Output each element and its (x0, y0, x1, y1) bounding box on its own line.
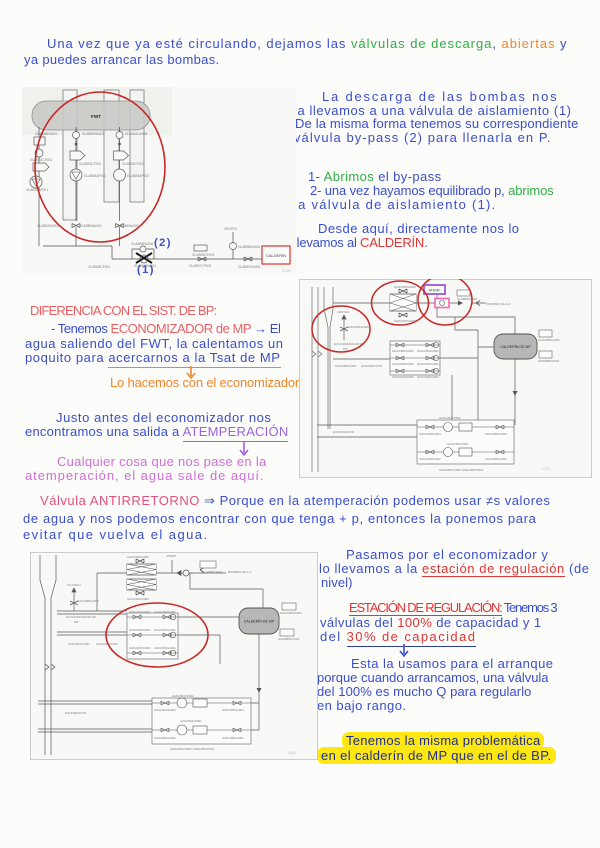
svg-text:ATEMP: ATEMP (428, 289, 441, 293)
svg-text:GMACB4NA002: GMACB4NA002 (417, 362, 439, 366)
svg-text:GMACB4NA002: GMACB4NA002 (154, 736, 176, 740)
svg-text:VENTEO: VENTEO (224, 227, 238, 231)
svg-text:GLABB3CP002: GLABB3CP002 (122, 162, 144, 166)
svg-text:GMACB3NA001: GMACB3NA001 (129, 610, 151, 614)
svg-text:MP: MP (343, 347, 348, 351)
svg-text:GMACB3NA001: GMACB3NA001 (392, 349, 414, 353)
svg-text:GMACB3CT001: GMACB3CT001 (361, 364, 383, 368)
svg-text:GMACB5NA002: GMACB5NA002 (222, 736, 244, 740)
svg-text:GMABB0CP001: GMABB0CP001 (538, 359, 560, 363)
svg-text:VENTEO: VENTEO (337, 310, 350, 314)
svg-text:GLABB5NA006: GLABB5NA006 (131, 242, 153, 246)
svg-text:GMACB3CP002: GMACB3CP002 (439, 416, 461, 420)
svg-text:GLABB5CP001: GLABB5CP001 (88, 265, 110, 269)
svg-text:CALDERÍN DE MP: CALDERÍN DE MP (500, 345, 531, 349)
svg-text:17/21: 17/21 (282, 269, 291, 273)
svg-text:GMACB5NA001: GMACB5NA001 (280, 611, 302, 615)
svg-text:GLABB1CP001: GLABB1CP001 (30, 158, 52, 162)
svg-text:2LABB5NA003: 2LABB5NA003 (80, 224, 102, 228)
svg-text:EVAPORADOR: EVAPORADOR (333, 430, 355, 434)
svg-text:GLABB4AP001: GLABB4AP001 (84, 174, 106, 178)
svg-text:V.CARGO: V.CARGO (67, 583, 81, 587)
svg-text:CALDERÍN: CALDERÍN (266, 253, 286, 258)
svg-text:17/21: 17/21 (542, 467, 550, 471)
svg-text:GMACB4CP001: GMACB4CP001 (180, 719, 202, 723)
svg-text:GMACB4NA001: GMACB4NA001 (154, 646, 176, 650)
svg-text:6LABB6CP001: 6LABB6CP001 (457, 297, 478, 301)
svg-text:GMACB3NA001: GMACB3NA001 (129, 646, 151, 650)
svg-text:GLABB4AP002: GLABB4AP002 (127, 174, 149, 178)
svg-text:GMACB3NA003: GMACB3NA003 (127, 597, 149, 601)
svg-text:GMACB3NA003: GMACB3NA003 (127, 555, 149, 559)
svg-text:GMACB4NA001: GMACB4NA001 (154, 610, 176, 614)
svg-text:GMACB4NA003: GMACB4NA003 (154, 708, 176, 712)
svg-text:GMACB3CP001: GMACB3CP001 (68, 642, 90, 646)
svg-text:GMACB3NA003: GMACB3NA003 (394, 285, 416, 289)
svg-text:GMACB5NA002: GMACB5NA002 (485, 457, 507, 461)
svg-text:GLABB5CP001: GLABB5CP001 (202, 570, 223, 574)
svg-text:GLABB2NA008: GLABB2NA008 (125, 132, 147, 136)
svg-text:GMACB3CP001: GMACB3CP001 (335, 364, 357, 368)
svg-text:GMACB3CP002 GMACB5CP001: GMACB3CP002 GMACB5CP001 (170, 747, 215, 751)
svg-text:GMACB4NA003: GMACB4NA003 (419, 432, 441, 436)
svg-text:ATEMP: ATEMP (166, 554, 176, 558)
svg-text:GMACB3NA002: GMACB3NA002 (392, 362, 414, 366)
svg-text:GLABB7NA004: GLABB7NA004 (238, 265, 260, 269)
svg-text:GMACB3CP002 GMACB5CP001: GMACB3CP002 GMACB5CP001 (439, 468, 484, 472)
svg-text:GLABB8NA001: GLABB8NA001 (35, 132, 57, 136)
svg-text:GLABB3CP001: GLABB3CP001 (79, 162, 101, 166)
svg-text:ECONOMIZADOR DE: ECONOMIZADOR DE (66, 615, 96, 619)
svg-text:16/21: 16/21 (288, 751, 296, 755)
svg-text:GMACB4NA002: GMACB4NA002 (419, 457, 441, 461)
svg-text:GMACB5NA005: GMACB5NA005 (77, 599, 99, 603)
svg-text:BOMBAS DE A.A.: BOMBAS DE A.A. (228, 570, 252, 574)
svg-text:BOMBAS DE A.A.: BOMBAS DE A.A. (487, 302, 511, 306)
svg-text:GMACB3NA001: GMACB3NA001 (129, 628, 151, 632)
svg-text:GMABB0CP001: GMABB0CP001 (278, 637, 300, 641)
svg-text:GLABB2NA007: GLABB2NA007 (82, 132, 104, 136)
svg-text:GMACB5NA003: GMACB5NA003 (222, 708, 244, 712)
svg-text:3LABB6NA003: 3LABB6NA003 (117, 224, 139, 228)
svg-text:GMACB4NA001: GMACB4NA001 (417, 349, 439, 353)
svg-text:GLABB2NA003: GLABB2NA003 (37, 224, 59, 228)
svg-text:GMACB5NA001: GMACB5NA001 (538, 338, 560, 342)
svg-text:GMACB5NA003: GMACB5NA003 (485, 432, 507, 436)
svg-text:EVAPORADOR: EVAPORADOR (65, 711, 87, 715)
svg-text:GMACB3CP002: GMACB3CP002 (172, 694, 194, 698)
svg-text:GMACB4CP001: GMACB4CP001 (447, 442, 469, 446)
svg-text:GMACB3NA003: GMACB3NA003 (392, 375, 414, 379)
svg-text:GLABB7CP004: GLABB7CP004 (189, 264, 211, 268)
svg-text:GLABB6NA004: GLABB6NA004 (238, 245, 260, 249)
svg-text:CALDERÍN DE MP: CALDERÍN DE MP (244, 620, 275, 624)
svg-text:GMACB4NA003: GMACB4NA003 (417, 375, 439, 379)
svg-text:ECONOMIZADOR DE: ECONOMIZADOR DE (334, 342, 364, 346)
svg-text:GMACB4NA001: GMACB4NA001 (154, 628, 176, 632)
svg-text:MP: MP (74, 620, 79, 624)
svg-text:GMACB5NA005: GMACB5NA005 (347, 325, 369, 329)
svg-text:GLABB9CP003: GLABB9CP003 (192, 253, 214, 257)
svg-text:FWT: FWT (91, 114, 101, 119)
